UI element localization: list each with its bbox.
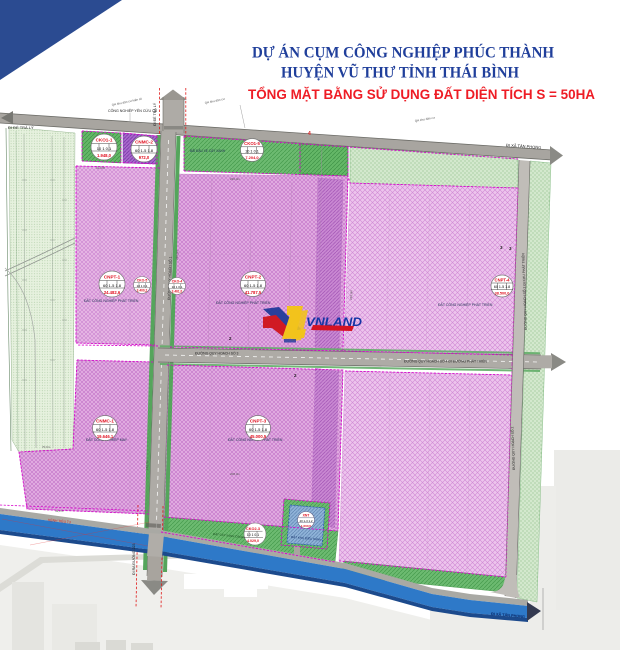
svg-text:DỰ ÁN CỤM CÔNG NGHIỆP PHÚC THÀ: DỰ ÁN CỤM CÔNG NGHIỆP PHÚC THÀNH: [252, 43, 555, 62]
svg-text:1.948,0: 1.948,0: [97, 153, 112, 158]
svg-text:CKO2-3: CKO2-3: [246, 527, 260, 531]
svg-text:60 1-5 1.8: 60 1-5 1.8: [244, 283, 263, 288]
svg-text:10 1 0.1: 10 1 0.1: [245, 149, 259, 153]
svg-text:60 1-5 1.8: 60 1-5 1.8: [249, 427, 268, 432]
svg-text:CKO1-1: CKO1-1: [96, 138, 113, 143]
svg-text:CNMC-1: CNMC-1: [96, 419, 114, 424]
svg-text:24.482,6: 24.482,6: [104, 290, 121, 295]
svg-text:60 1-5 1.8: 60 1-5 1.8: [103, 283, 122, 288]
svg-text:4: 4: [308, 131, 311, 137]
svg-text:43,2m: 43,2m: [55, 509, 64, 513]
svg-text:60 1-5 1.8: 60 1-5 1.8: [494, 285, 510, 289]
svg-text:41.787,5: 41.787,5: [245, 290, 262, 295]
svg-text:60 1-5 1.8: 60 1-5 1.8: [96, 427, 115, 432]
svg-text:CNPT-4: CNPT-4: [495, 277, 511, 282]
svg-text:4.029,0: 4.029,0: [247, 539, 259, 543]
svg-text:ĐƯỜNG QUY HOẠCH SỐ 4 ĐI ĐƯỜNG: ĐƯỜNG QUY HOẠCH SỐ 4 ĐI ĐƯỜNG PHÁT TRIỂN: [404, 359, 488, 364]
svg-text:45.000,5: 45.000,5: [250, 434, 267, 439]
svg-text:70,0m: 70,0m: [42, 445, 51, 449]
svg-text:CKO-4: CKO-4: [172, 279, 183, 283]
svg-text:38.500,0: 38.500,0: [495, 292, 510, 296]
svg-text:BÃI ĐẬU XE CÂY XANH: BÃI ĐẬU XE CÂY XANH: [190, 148, 226, 153]
svg-text:256,3m: 256,3m: [175, 249, 179, 260]
svg-text:10 1 0.1: 10 1 0.1: [172, 285, 183, 289]
svg-text:CNPT-1: CNPT-1: [104, 275, 121, 280]
svg-text:CNMC-2: CNMC-2: [135, 140, 153, 145]
svg-text:10 1 0.1: 10 1 0.1: [247, 533, 259, 537]
svg-text:CÔNG NGHIỆP YÊN CỨU CŨ: CÔNG NGHIỆP YÊN CỨU CŨ: [108, 108, 158, 113]
svg-text:ĐI ĐỂ TRÀ LÝ: ĐI ĐỂ TRÀ LÝ: [8, 125, 34, 130]
svg-text:CKO1-5: CKO1-5: [244, 141, 260, 146]
svg-text:TỔNG MẶT BẰNG SỬ DỤNG ĐẤT DIỆN: TỔNG MẶT BẰNG SỬ DỤNG ĐẤT DIỆN TÍCH S = …: [248, 85, 595, 102]
svg-text:ĐẤT CÔNG NGHIỆP PHÁT TRIỂN: ĐẤT CÔNG NGHIỆP PHÁT TRIỂN: [84, 298, 139, 303]
svg-text:3.461,0: 3.461,0: [172, 290, 183, 294]
svg-text:162,7m: 162,7m: [145, 459, 149, 470]
svg-text:40 1-3 1.2: 40 1-3 1.2: [299, 519, 312, 523]
svg-text:3.400,2: 3.400,2: [137, 289, 148, 293]
svg-text:ĐI RA ĐƯỜNG 223: ĐI RA ĐƯỜNG 223: [131, 543, 136, 575]
svg-text:ĐI ĐỂ TRÀ LÝ: ĐI ĐỂ TRÀ LÝ: [152, 102, 157, 126]
svg-text:CNPT-3: CNPT-3: [250, 419, 267, 424]
svg-text:CKO-5: CKO-5: [137, 278, 148, 282]
svg-text:10 1 0.1: 10 1 0.1: [97, 146, 112, 151]
svg-text:7.204,0: 7.204,0: [245, 155, 259, 160]
svg-text:230,4m: 230,4m: [230, 177, 241, 181]
svg-text:ĐƯỜNG QUY HOẠCH SỐ 3: ĐƯỜNG QUY HOẠCH SỐ 3: [195, 351, 239, 356]
svg-text:10 1 0.1: 10 1 0.1: [137, 284, 148, 288]
svg-text:HUYỆN VŨ THƯ TỈNH THÁI BÌNH: HUYỆN VŨ THƯ TỈNH THÁI BÌNH: [281, 62, 520, 82]
svg-text:ĐẤT CÔNG NGHIỆP PHÁT TRIỂN: ĐẤT CÔNG NGHIỆP PHÁT TRIỂN: [216, 300, 271, 305]
svg-text:XNT: XNT: [303, 514, 311, 518]
svg-text:ĐẤT CÔNG NGHIỆP PHÁT TRIỂN: ĐẤT CÔNG NGHIỆP PHÁT TRIỂN: [438, 302, 493, 307]
svg-text:1.600,5: 1.600,5: [301, 524, 312, 528]
svg-text:41,0m: 41,0m: [96, 166, 105, 170]
svg-text:60 1-5 1.8: 60 1-5 1.8: [135, 148, 154, 153]
svg-text:208,3m: 208,3m: [230, 472, 241, 476]
svg-text:CNPT-2: CNPT-2: [245, 275, 262, 280]
svg-text:235,0m: 235,0m: [349, 289, 353, 300]
svg-text:19.646,1: 19.646,1: [97, 434, 114, 439]
svg-text:972,0: 972,0: [139, 155, 150, 160]
